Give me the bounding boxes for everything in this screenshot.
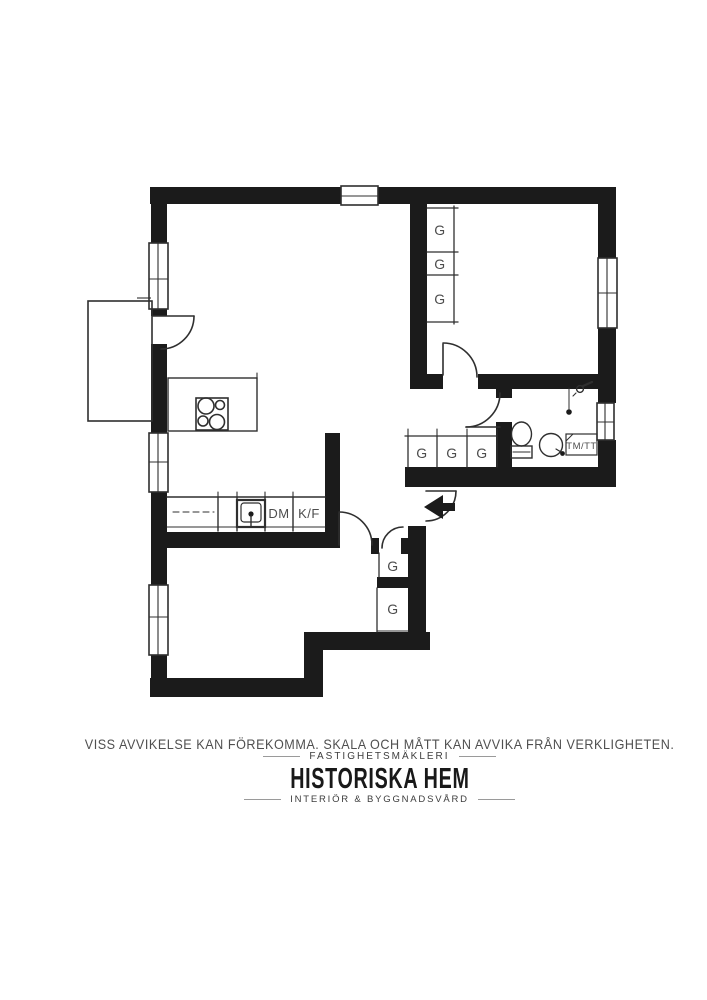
- window-bedroom-left: [149, 585, 168, 655]
- rule-right: [459, 756, 496, 757]
- wardrobe-label: G: [434, 256, 445, 272]
- wardrobe-label: G: [416, 445, 427, 461]
- kitchen-upper-counter: [168, 378, 257, 431]
- window-top-wall: [341, 186, 378, 205]
- wardrobe-label: G: [476, 445, 487, 461]
- walls: [150, 187, 616, 697]
- rule-right: [478, 799, 515, 800]
- washer-dryer-label: TM/TT: [566, 441, 596, 452]
- floor-plan-page: DM K/F TM/TT: [0, 0, 707, 1000]
- wardrobe-label: G: [387, 601, 398, 617]
- brand-logo: FASTIGHETSMÄKLERI HISTORISKA HEM INTERIÖ…: [26, 751, 707, 805]
- closet-door-swing: [382, 527, 403, 548]
- entrance-arrow-icon: [424, 495, 455, 519]
- washbasin-icon: [540, 434, 565, 457]
- brand-tagline: INTERIÖR & BYGGNADSVÅRD: [290, 794, 469, 805]
- rule-left: [244, 799, 281, 800]
- brand-category: FASTIGHETSMÄKLERI: [309, 751, 449, 762]
- bedroom-door-swing: [443, 343, 477, 377]
- window-living-left: [137, 243, 168, 309]
- window-bathroom-right: [597, 403, 614, 440]
- bottom-room-door-swing: [339, 512, 372, 545]
- dishwasher-label: DM: [268, 506, 289, 521]
- wardrobe-label: G: [434, 222, 445, 238]
- wardrobe-label: G: [446, 445, 457, 461]
- window-bedroom-right: [598, 258, 617, 328]
- sink-icon: [237, 500, 265, 527]
- wardrobe-label: G: [434, 291, 445, 307]
- brand-category-row: FASTIGHETSMÄKLERI: [254, 751, 504, 762]
- disclaimer-text: VISS AVVIKELSE KAN FÖREKOMMA. SKALA OCH …: [85, 736, 675, 752]
- fridge-freezer-label: K/F: [298, 506, 320, 521]
- rule-left: [263, 756, 300, 757]
- window-kitchen-left: [149, 433, 168, 492]
- toilet-icon: [511, 422, 532, 458]
- wardrobe-label: G: [387, 558, 398, 574]
- bathroom-door-swing: [466, 393, 500, 427]
- floor-drain-mark: [566, 388, 572, 415]
- floor-plan: DM K/F TM/TT: [0, 0, 707, 730]
- balcony-outline: [88, 301, 152, 421]
- stove-icon: [196, 398, 228, 430]
- brand-tagline-row: INTERIÖR & BYGGNADSVÅRD: [235, 794, 524, 805]
- brand-name: HISTORISKA HEM: [290, 764, 469, 794]
